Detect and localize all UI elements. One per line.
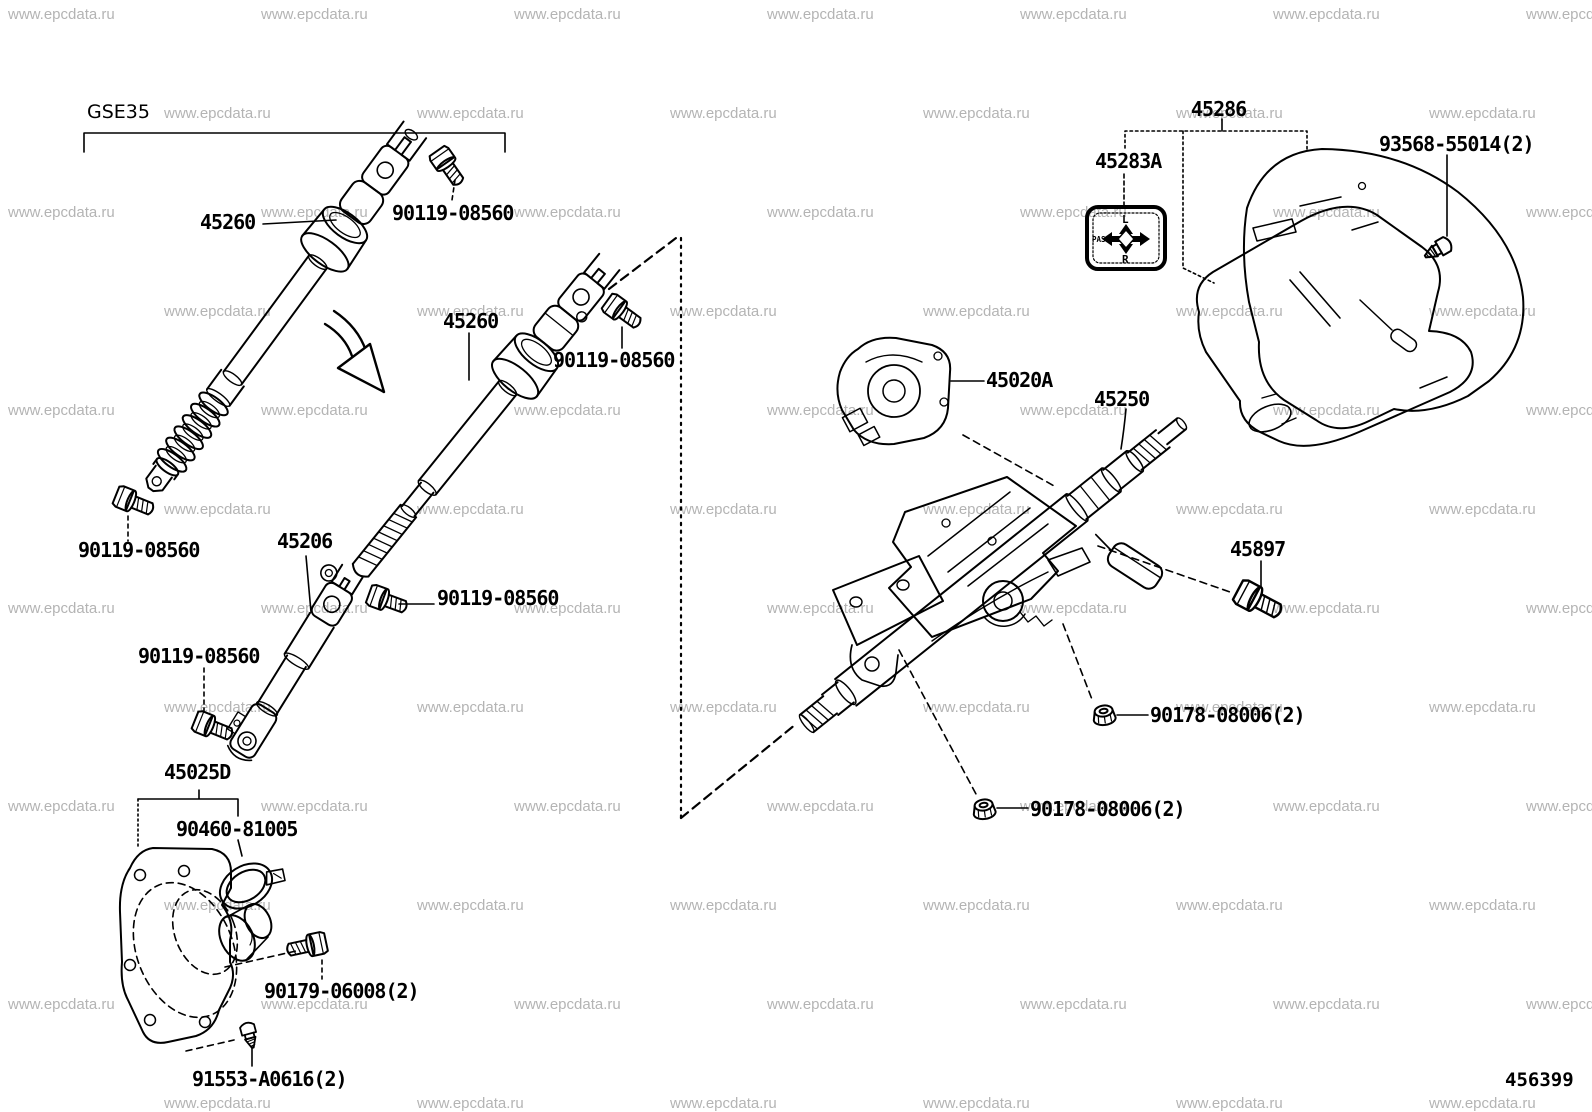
part-number-label: 90119-08560 — [553, 350, 674, 370]
part-number-label: 90179-06008(2) — [264, 981, 419, 1001]
part-number-label: 91553-A0616(2) — [192, 1069, 347, 1089]
part-number-label: 90460-81005 — [176, 819, 297, 839]
part-number-label: 45250 — [1094, 389, 1149, 409]
part-number-label: 45897 — [1230, 539, 1285, 559]
figure-number-text: 456399 — [1505, 1071, 1574, 1090]
model-code-text: GSE35 — [87, 103, 150, 122]
part-number-label: 45286 — [1191, 99, 1246, 119]
part-number-label: 93568-55014(2) — [1379, 134, 1534, 154]
part-number-label: 45283A — [1095, 151, 1161, 171]
part-number-label: 45260 — [443, 311, 498, 331]
part-number-label: 90119-08560 — [392, 203, 513, 223]
part-number-label: 90119-08560 — [138, 646, 259, 666]
parts-catalog-page: { "diagram": { "model_code": "GSE35", "f… — [0, 0, 1592, 1099]
part-number-label: 45206 — [277, 531, 332, 551]
part-number-label: 45020A — [986, 370, 1052, 390]
part-number-label: 45260 — [200, 212, 255, 232]
part-number-label: 90178-08006(2) — [1030, 799, 1185, 819]
part-number-label: 90119-08560 — [78, 540, 199, 560]
part-number-label: 90119-08560 — [437, 588, 558, 608]
label-layer: GSE35 45260 90119-08560 45260 90119-0856… — [0, 0, 1592, 1099]
part-number-label: 45025D — [164, 762, 230, 782]
part-number-label: 90178-08006(2) — [1150, 705, 1305, 725]
